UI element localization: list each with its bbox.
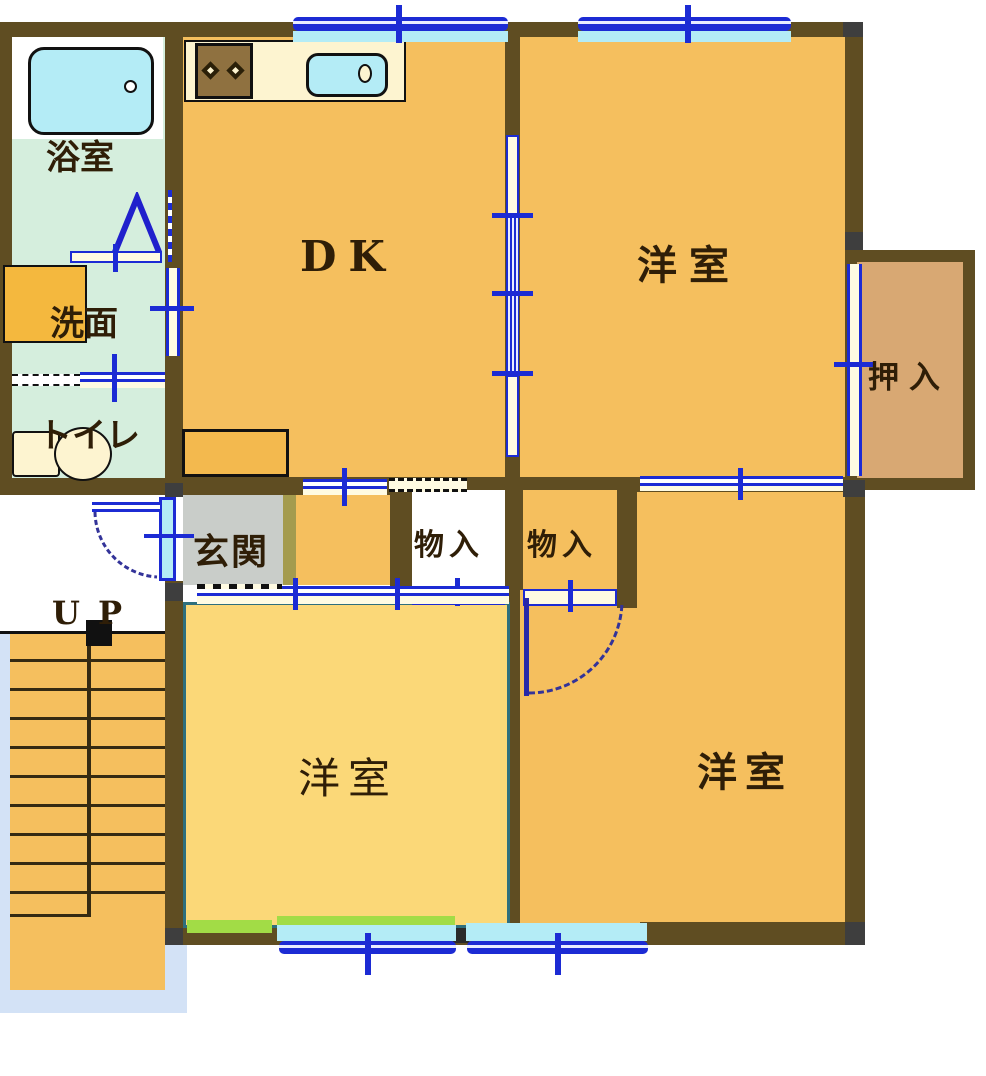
washroom-label: 洗面 <box>50 296 118 345</box>
hallway-floor <box>296 495 390 585</box>
wall-bath-right <box>165 37 183 495</box>
balcony-green-strip <box>277 916 455 925</box>
partition-panel <box>506 375 519 457</box>
toilet-label: トイレ <box>38 408 140 457</box>
slider-tick <box>150 306 194 311</box>
stairs-center-line <box>87 633 91 917</box>
slider-tick <box>342 468 347 506</box>
stove-icon <box>195 43 253 99</box>
slider-tick <box>738 468 743 500</box>
stairs-up-label-u: U <box>52 594 80 632</box>
window-tick <box>685 5 691 43</box>
wall-storage-middle <box>505 477 523 590</box>
corner-bottom-right <box>845 922 865 945</box>
entrance-step-strip <box>283 495 296 585</box>
floor-plan-canvas: 浴室 洗面 トイレ DK 洋室 押入 玄関 物入 物入 洋室 洋室 U P <box>0 0 986 1076</box>
slider-tick <box>293 578 298 610</box>
wash-dk-slider <box>166 268 180 356</box>
bath-door-track <box>168 190 172 262</box>
oshiire-fusuma-door <box>847 264 862 476</box>
stairs-edge-left <box>0 633 10 990</box>
stove-burner-icon <box>226 61 244 79</box>
stairs-up-label-p: P <box>98 594 122 632</box>
corner-entry-top <box>165 483 183 497</box>
oshiire-label: 押入 <box>868 352 950 397</box>
bedroom-bottom-left-label: 洋室 <box>298 745 398 806</box>
wall-storage-right-top <box>523 477 617 490</box>
window-tick <box>555 933 561 975</box>
partition-tick <box>492 291 533 296</box>
kitchen-sink-icon <box>306 53 388 97</box>
storage-right-label: 物入 <box>527 520 597 564</box>
wall-bottom-right <box>640 922 845 945</box>
bath-folding-door-icon <box>110 192 166 256</box>
bathtub-drain-icon <box>124 80 137 93</box>
partition-tick <box>492 371 533 376</box>
stove-burner-icon <box>201 61 219 79</box>
corner-oshiire-bottom <box>843 480 865 497</box>
corner-top-right <box>843 22 863 37</box>
dk-label: DK <box>300 232 397 281</box>
corner-oshiire-top <box>845 232 863 250</box>
bedroom-bottom-right-label: 洋室 <box>697 740 793 798</box>
wash-toilet-slider <box>80 372 165 388</box>
wall-entry-left <box>165 581 183 945</box>
corner-entry-mid <box>165 583 183 601</box>
wash-toilet-halfwall <box>12 374 80 386</box>
wall-right-bottom <box>845 490 865 945</box>
slider-tick <box>113 244 118 272</box>
corner-entry-bottom <box>165 928 183 945</box>
wall-right-top <box>845 22 863 250</box>
balcony-green-strip <box>187 920 272 933</box>
stairs-edge-bottom <box>0 990 187 1013</box>
wall-storage-left-side <box>390 477 412 590</box>
wall-storage-right-side <box>617 477 637 608</box>
partition-tick <box>492 213 533 218</box>
bedroom-top-right-label: 洋室 <box>637 233 741 291</box>
window-tick <box>365 933 371 975</box>
slider-tick <box>112 354 117 402</box>
window-tick <box>396 5 402 43</box>
dk-cabinet <box>182 429 289 477</box>
slider-dashed-rail <box>197 584 282 589</box>
entrance-label: 玄関 <box>193 523 269 575</box>
dk-opening-dashed <box>389 478 467 492</box>
partition-panel <box>506 135 519 215</box>
door-tick <box>144 534 194 538</box>
storage-left-label: 物入 <box>414 520 484 564</box>
entrance-door-swing-arc <box>90 505 168 583</box>
bathroom-label: 浴室 <box>46 130 114 179</box>
stairs-landing-line <box>10 914 88 917</box>
slider-tick <box>395 578 400 610</box>
sink-drain-icon <box>358 64 372 83</box>
bedroom-door-swing-arc <box>522 596 630 702</box>
wall-bath-bottom <box>0 478 183 495</box>
stairs-edge-notch <box>165 945 187 990</box>
